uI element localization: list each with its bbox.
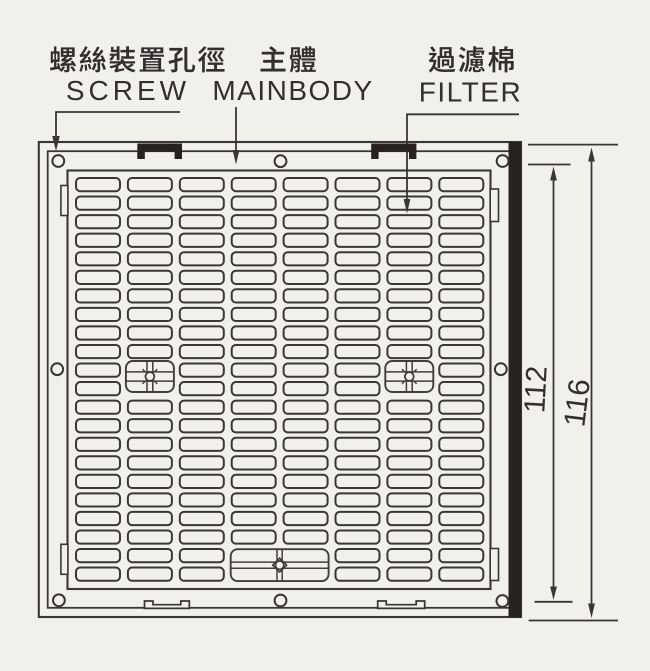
svg-text:112: 112 (518, 365, 553, 414)
svg-text:MAINBODY: MAINBODY (212, 75, 373, 106)
svg-text:SCREW: SCREW (66, 75, 190, 106)
svg-text:116: 116 (558, 377, 597, 428)
svg-text:FILTER: FILTER (419, 77, 522, 108)
